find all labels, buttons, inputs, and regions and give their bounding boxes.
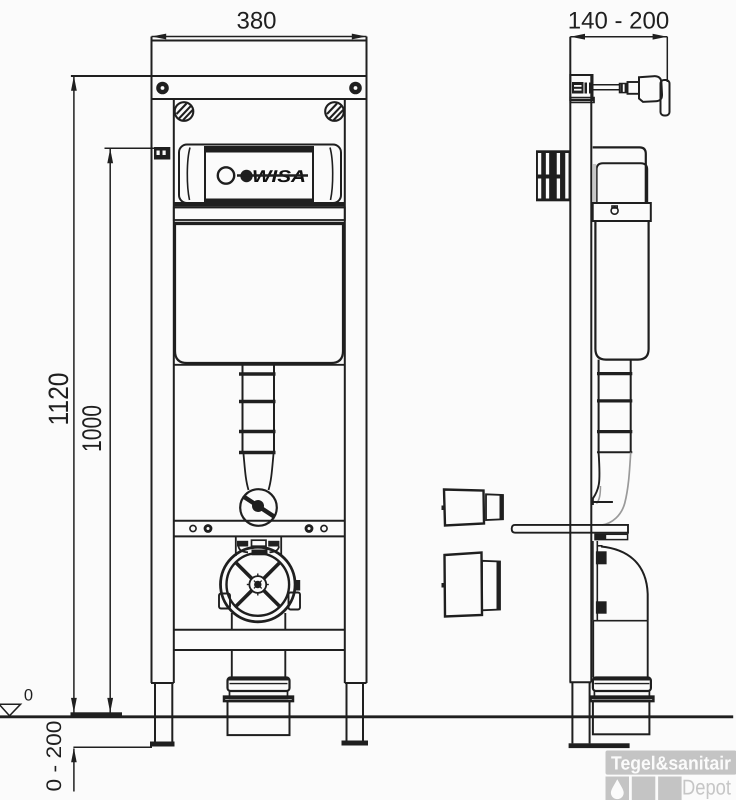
svg-text:0 - 200: 0 - 200 [43, 721, 66, 792]
svg-text:1120: 1120 [43, 373, 74, 426]
svg-text:Depot: Depot [682, 776, 731, 800]
svg-text:140 - 200: 140 - 200 [568, 8, 669, 35]
svg-text:380: 380 [236, 8, 276, 35]
svg-text:0: 0 [24, 687, 33, 705]
svg-text:1000: 1000 [77, 405, 107, 452]
svg-text:Tegel&sanitair: Tegel&sanitair [611, 753, 732, 774]
